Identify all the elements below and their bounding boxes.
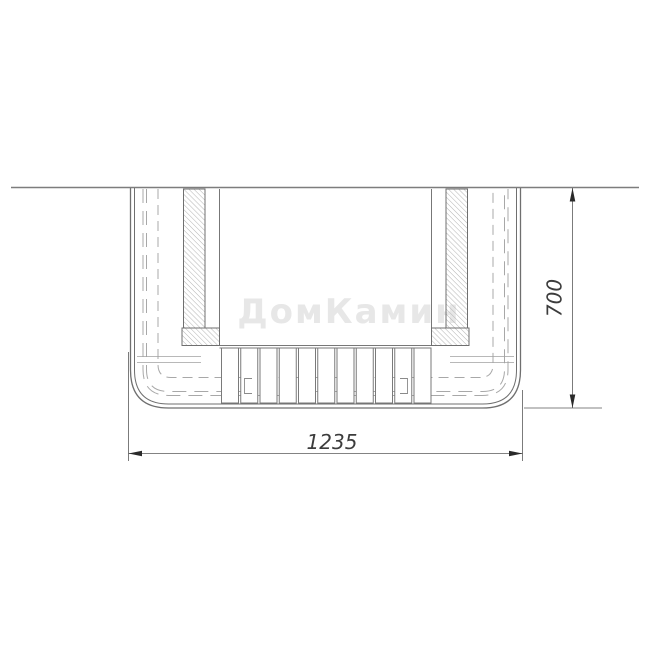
technical-drawing-canvas: ДомКамин <box>0 0 650 650</box>
slat <box>337 348 354 403</box>
width-arrow-right-icon <box>509 451 523 457</box>
watermark-text: ДомКамин <box>237 292 460 332</box>
height-dimension-label: 700 <box>543 279 567 317</box>
right-wall-section-hatch <box>446 189 468 328</box>
slat <box>318 348 335 403</box>
slat <box>356 348 373 403</box>
right-foot-section-hatch <box>432 328 470 346</box>
slat <box>260 348 277 403</box>
slat <box>376 348 393 403</box>
left-wall-section-hatch <box>184 189 206 328</box>
slat <box>222 348 239 403</box>
slat <box>395 348 412 403</box>
slat <box>299 348 316 403</box>
slat <box>414 348 431 403</box>
height-arrow-bottom-icon <box>570 395 576 409</box>
slat <box>241 348 258 403</box>
width-dimension-label: 1235 <box>307 430 358 454</box>
technical-drawing: ДомКамин <box>0 0 650 650</box>
height-arrow-top-icon <box>570 188 576 202</box>
width-arrow-left-icon <box>129 451 143 457</box>
slats-group <box>222 348 432 403</box>
left-foot-section-hatch <box>182 328 220 346</box>
slat <box>279 348 296 403</box>
height-dimension: 700 <box>524 188 602 408</box>
